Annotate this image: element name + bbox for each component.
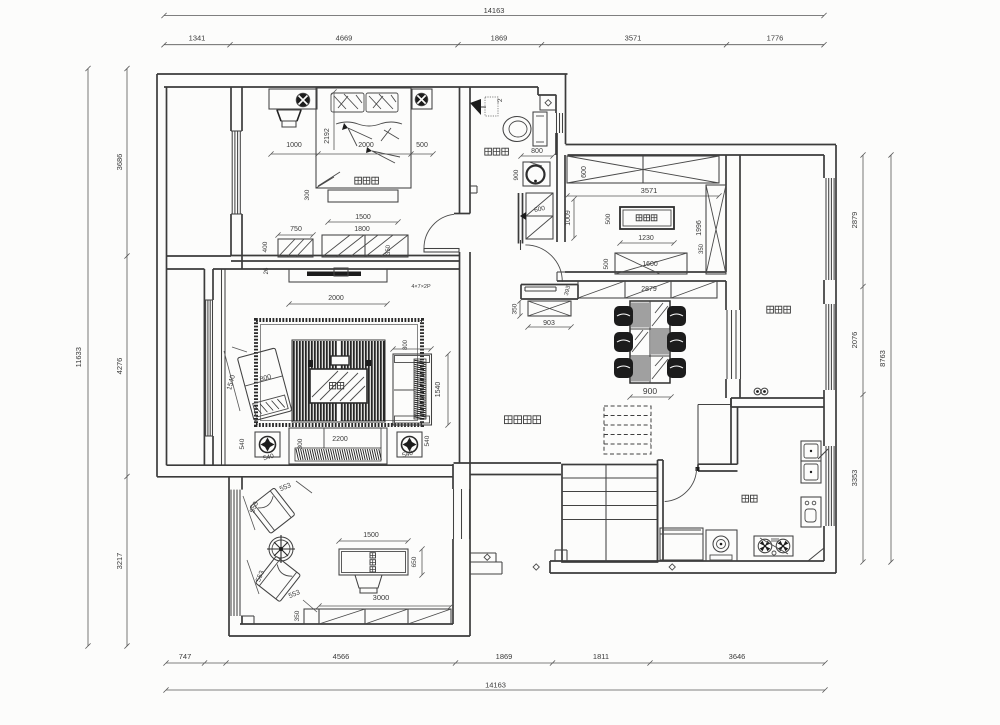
svg-text:3000: 3000 — [373, 593, 390, 602]
svg-text:1540: 1540 — [435, 382, 442, 398]
svg-text:1811: 1811 — [593, 652, 609, 661]
svg-text:3217: 3217 — [115, 553, 124, 570]
svg-text:1500: 1500 — [363, 532, 379, 539]
svg-text:400: 400 — [262, 241, 269, 252]
svg-text:350: 350 — [699, 243, 705, 254]
svg-text:2192: 2192 — [324, 128, 331, 144]
svg-text:900: 900 — [643, 386, 657, 396]
svg-text:2879: 2879 — [850, 212, 859, 229]
svg-text:2879: 2879 — [641, 286, 657, 293]
svg-text:3646: 3646 — [729, 652, 746, 661]
svg-text:300: 300 — [304, 189, 311, 200]
svg-text:500: 500 — [416, 142, 428, 149]
svg-text:1600: 1600 — [642, 261, 658, 268]
svg-text:2076: 2076 — [850, 332, 859, 349]
svg-text:2200: 2200 — [332, 436, 348, 443]
svg-text:500: 500 — [603, 258, 610, 269]
svg-text:540: 540 — [239, 438, 246, 449]
svg-text:1500: 1500 — [355, 214, 371, 221]
svg-text:350: 350 — [386, 244, 392, 255]
svg-text:1000: 1000 — [286, 142, 302, 149]
svg-text:300: 300 — [297, 438, 304, 449]
svg-text:2000: 2000 — [358, 142, 374, 149]
svg-text:650: 650 — [411, 556, 418, 567]
svg-text:3571: 3571 — [641, 186, 658, 195]
svg-text:1230: 1230 — [638, 235, 654, 242]
svg-text:’2: ’2 — [497, 98, 504, 103]
svg-text:747: 747 — [179, 652, 192, 661]
svg-text:14163: 14163 — [485, 681, 506, 690]
svg-text:3353: 3353 — [850, 470, 859, 487]
svg-text:1776: 1776 — [767, 34, 784, 43]
svg-text:1009: 1009 — [565, 210, 572, 226]
svg-text:1341: 1341 — [189, 34, 206, 43]
svg-text:4669: 4669 — [336, 34, 353, 43]
svg-text:2000: 2000 — [328, 295, 344, 302]
svg-text:540: 540 — [424, 435, 431, 446]
svg-text:750: 750 — [290, 226, 302, 233]
svg-text:1800: 1800 — [354, 226, 370, 233]
svg-text:3571: 3571 — [625, 34, 642, 43]
svg-text:4566: 4566 — [333, 652, 350, 661]
svg-text:1996: 1996 — [696, 220, 703, 236]
svg-text:900: 900 — [513, 169, 520, 180]
svg-text:350: 350 — [294, 610, 301, 621]
svg-text:26: 26 — [264, 267, 270, 274]
svg-text:800: 800 — [403, 339, 409, 350]
svg-text:4×7×2P: 4×7×2P — [411, 284, 431, 290]
svg-text:500: 500 — [605, 213, 612, 224]
svg-text:8763: 8763 — [878, 350, 887, 367]
svg-text:3686: 3686 — [115, 154, 124, 171]
svg-text:600: 600 — [581, 166, 588, 178]
svg-text:4276: 4276 — [115, 358, 124, 375]
svg-text:350: 350 — [512, 303, 519, 314]
svg-text:800: 800 — [531, 148, 543, 155]
svg-text:11633: 11633 — [74, 347, 83, 367]
svg-text:903: 903 — [543, 320, 555, 327]
svg-text:14163: 14163 — [484, 6, 505, 15]
svg-text:1869: 1869 — [491, 34, 508, 43]
svg-text:1869: 1869 — [496, 652, 513, 661]
